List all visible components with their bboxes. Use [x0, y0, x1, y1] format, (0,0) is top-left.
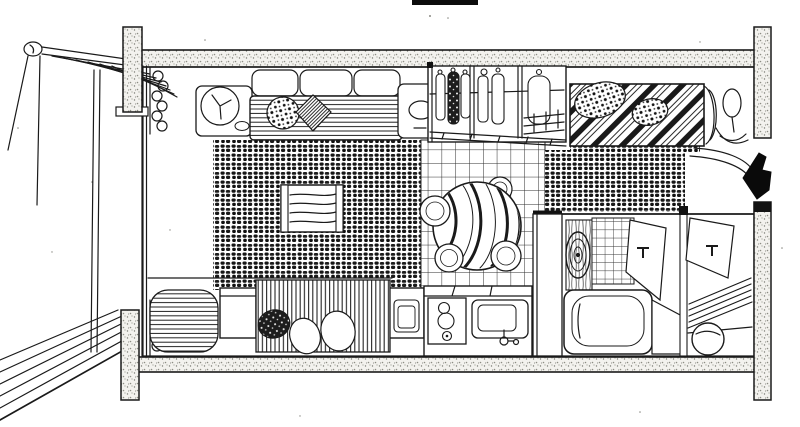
bedside-lamp	[716, 89, 748, 143]
wardrobe	[427, 62, 566, 146]
stool	[435, 244, 463, 272]
bathtub	[564, 290, 682, 354]
balcony-posts	[91, 70, 100, 352]
utility-room	[686, 218, 752, 355]
utility-door	[686, 218, 734, 278]
scanned-page	[0, 0, 800, 427]
bottom-left-column	[121, 310, 139, 400]
top-right-column	[754, 27, 771, 138]
sofa-back-cushion	[252, 70, 298, 96]
kitchen	[389, 286, 532, 356]
slatted-mat	[688, 278, 752, 333]
entrance-arrow-icon	[743, 153, 771, 199]
laundry-basket	[692, 323, 724, 355]
stool	[420, 196, 450, 226]
top-left-column	[123, 27, 142, 112]
scan-artifact-bar	[412, 0, 478, 5]
column-cut-cap	[754, 202, 771, 212]
blanket-roll	[150, 290, 218, 352]
oval-basin	[566, 232, 590, 278]
sofa-back-cushion	[354, 70, 400, 96]
bottom-wall	[130, 357, 770, 372]
top-wall	[130, 50, 770, 67]
tub-ledge	[652, 300, 682, 354]
bedside-rug	[545, 150, 685, 212]
bathroom	[533, 206, 754, 356]
curtain-top	[150, 68, 168, 134]
bed-base-shadow	[570, 146, 700, 153]
sleeping-area	[545, 76, 754, 212]
floorplan-drawing	[0, 0, 800, 427]
duvet-roll	[704, 86, 716, 144]
tv-console	[281, 185, 343, 232]
right-lower-column	[754, 202, 771, 400]
entry	[743, 153, 771, 199]
bath-door	[626, 220, 666, 300]
sink	[472, 300, 528, 345]
bath-room	[564, 218, 682, 354]
sofa	[196, 70, 446, 140]
room-divider-wall	[679, 206, 688, 356]
dining-area	[420, 140, 545, 290]
sofa-back-cushion	[300, 70, 352, 96]
stool	[491, 241, 521, 271]
balcony-deck-planks	[0, 310, 131, 420]
partition-slab	[533, 212, 562, 356]
second-bed	[148, 278, 392, 358]
hanging-garments	[436, 68, 550, 124]
stove	[428, 298, 466, 344]
living-area	[196, 70, 446, 290]
